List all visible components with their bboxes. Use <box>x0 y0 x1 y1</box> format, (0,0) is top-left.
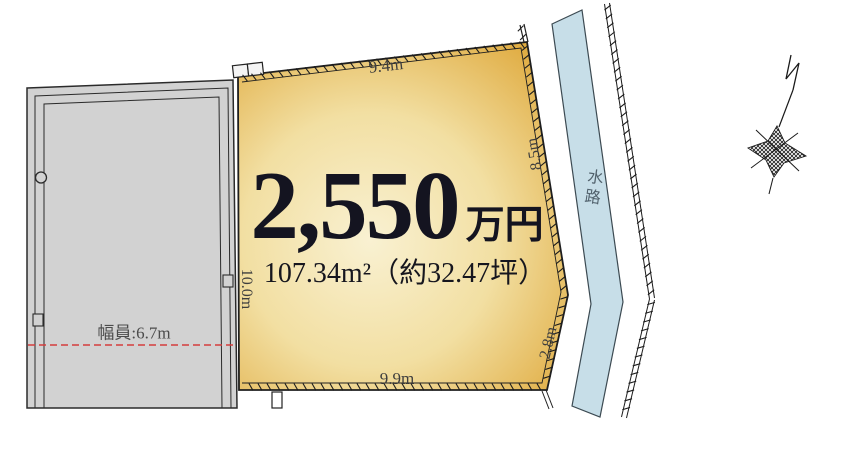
north-zigzag-arrow <box>786 55 799 90</box>
bottom-marker <box>272 392 282 408</box>
road-surface <box>27 80 237 408</box>
road-marker-right <box>223 275 233 287</box>
plot-polygon <box>238 42 568 390</box>
boundary-stone-markers <box>232 62 263 77</box>
site-plan: 2,550 万円 107.34m²（約32.47坪） 9.4m 8.5m 10.… <box>0 0 846 470</box>
north-arrow <box>748 55 806 194</box>
road-marker-left <box>33 314 43 326</box>
corner-spur-line <box>524 24 528 42</box>
plan-drawing <box>0 0 846 470</box>
road-area <box>27 80 237 408</box>
manhole-circle <box>36 172 47 183</box>
waterway-band <box>552 10 623 417</box>
land-plot <box>232 24 568 409</box>
